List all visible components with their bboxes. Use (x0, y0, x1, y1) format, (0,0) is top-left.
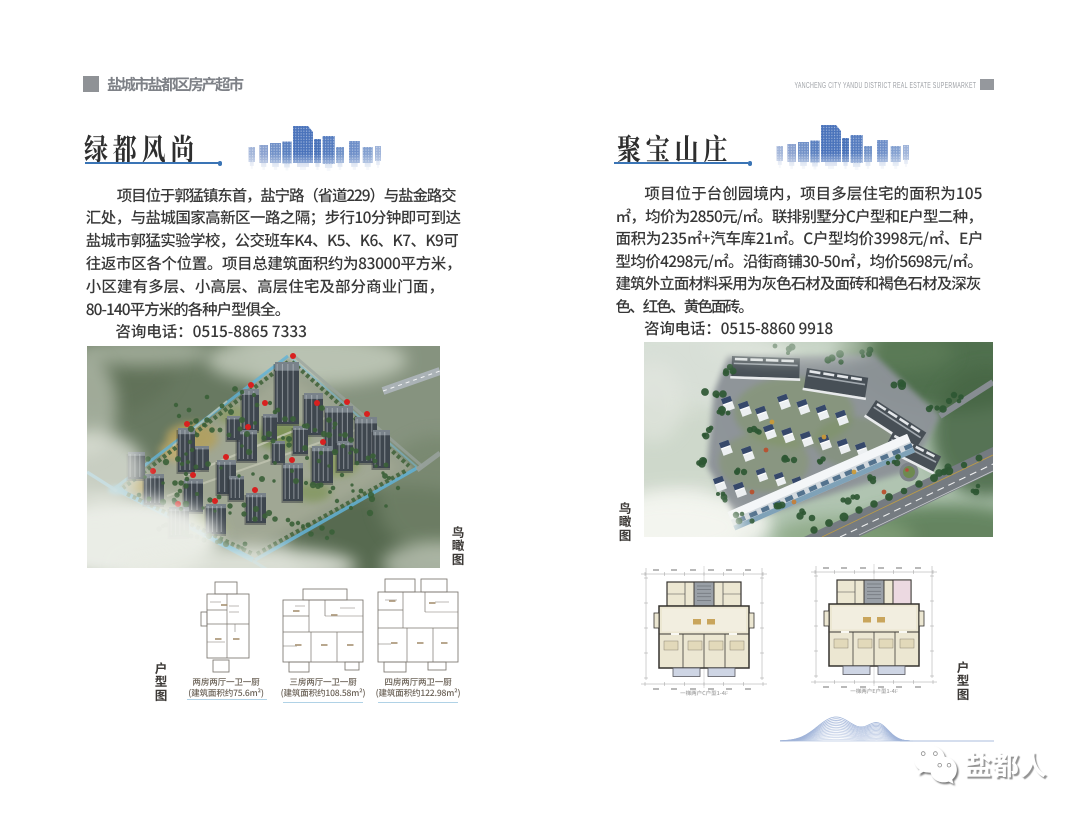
svg-text:一梯两户E户型1-4F: 一梯两户E户型1-4F (850, 687, 898, 695)
svg-text:一梯两户C户型1-4F: 一梯两户C户型1-4F (680, 689, 728, 697)
